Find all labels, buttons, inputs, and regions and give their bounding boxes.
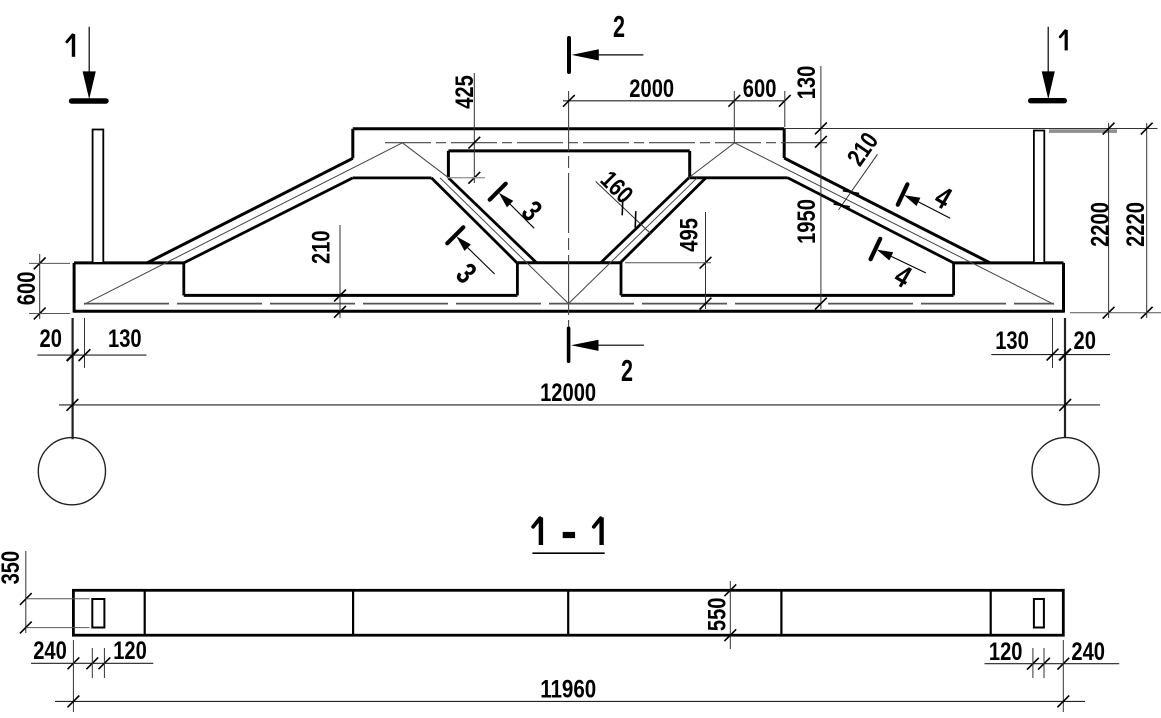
svg-text:210: 210 [307, 230, 335, 264]
svg-text:2220: 2220 [1122, 202, 1150, 247]
svg-text:120: 120 [989, 638, 1023, 666]
svg-text:2: 2 [621, 353, 633, 388]
svg-text:2: 2 [613, 9, 625, 44]
svg-text:130: 130 [108, 325, 142, 353]
svg-text:495: 495 [675, 218, 703, 252]
svg-text:120: 120 [113, 637, 147, 665]
svg-text:2200: 2200 [1087, 202, 1115, 247]
svg-text:11960: 11960 [540, 675, 596, 703]
svg-text:20: 20 [1074, 327, 1096, 355]
svg-text:600: 600 [13, 272, 41, 306]
svg-text:240: 240 [33, 637, 67, 665]
svg-text:2000: 2000 [629, 75, 674, 103]
svg-text:350: 350 [0, 551, 25, 585]
svg-text:425: 425 [451, 75, 479, 109]
svg-text:1950: 1950 [793, 199, 821, 244]
svg-text:20: 20 [40, 325, 62, 353]
svg-text:240: 240 [1071, 638, 1105, 666]
svg-text:12000: 12000 [540, 379, 596, 407]
svg-text:130: 130 [995, 327, 1029, 355]
svg-text:130: 130 [793, 66, 821, 100]
svg-text:600: 600 [743, 75, 777, 103]
svg-text:550: 550 [703, 598, 731, 632]
